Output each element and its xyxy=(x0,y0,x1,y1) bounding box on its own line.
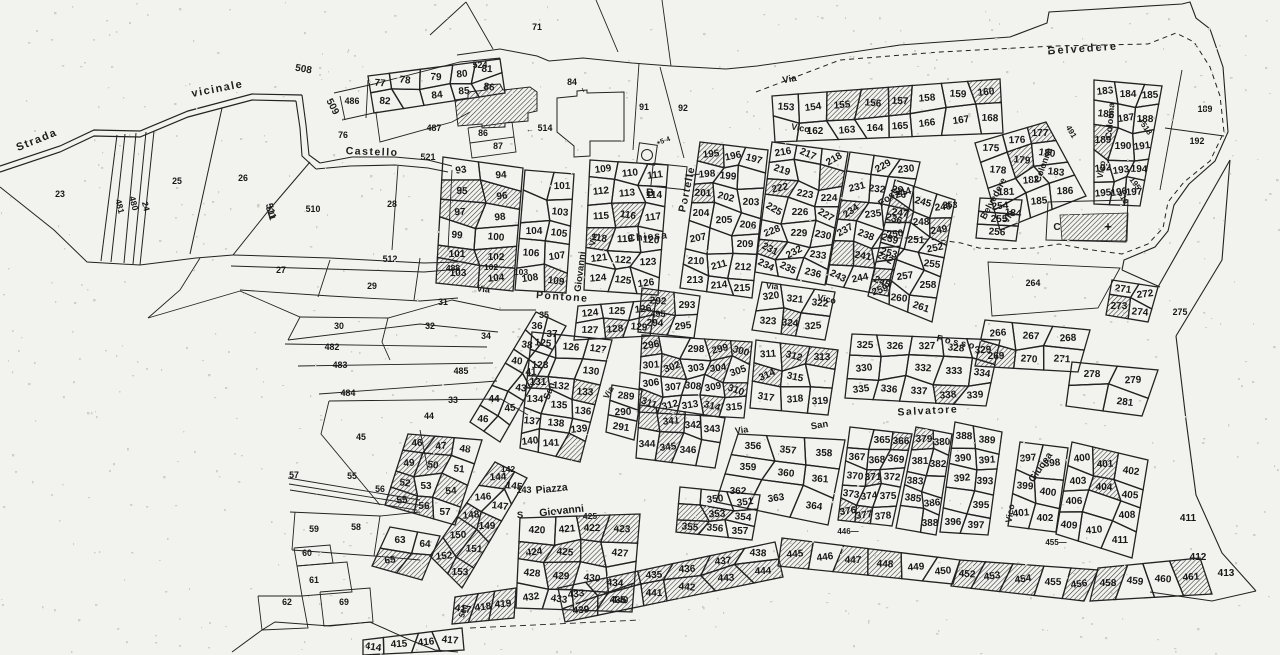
svg-text:446—: 446— xyxy=(837,527,858,536)
svg-text:486: 486 xyxy=(345,96,360,106)
svg-text:344: 344 xyxy=(639,439,656,450)
svg-text:168: 168 xyxy=(981,113,998,125)
svg-text:103: 103 xyxy=(514,267,529,277)
svg-text:41: 41 xyxy=(525,367,537,378)
svg-text:100: 100 xyxy=(487,231,505,243)
svg-text:514: 514 xyxy=(538,123,553,133)
svg-text:C: C xyxy=(1053,222,1060,233)
svg-text:371: 371 xyxy=(865,472,882,483)
svg-text:194: 194 xyxy=(1130,164,1147,176)
svg-text:56: 56 xyxy=(375,484,385,494)
svg-text:264: 264 xyxy=(1026,278,1041,288)
svg-text:185: 185 xyxy=(1141,90,1159,102)
svg-text:343: 343 xyxy=(703,424,720,436)
svg-text:86: 86 xyxy=(478,128,488,138)
svg-text:256: 256 xyxy=(988,226,1006,238)
svg-text:385: 385 xyxy=(904,492,922,505)
svg-text:388: 388 xyxy=(922,518,939,529)
svg-text:31: 31 xyxy=(438,297,448,307)
svg-text:55: 55 xyxy=(396,494,408,506)
svg-text:62: 62 xyxy=(282,597,292,607)
svg-text:357: 357 xyxy=(779,444,797,457)
svg-text:110: 110 xyxy=(621,167,639,180)
svg-text:84: 84 xyxy=(567,77,577,87)
svg-text:230: 230 xyxy=(897,163,915,176)
svg-text:402: 402 xyxy=(1037,513,1054,524)
svg-text:324: 324 xyxy=(781,317,799,329)
svg-text:45: 45 xyxy=(356,432,366,442)
svg-text:46: 46 xyxy=(411,438,423,450)
svg-text:375: 375 xyxy=(880,491,897,502)
svg-text:397: 397 xyxy=(1019,452,1037,464)
svg-text:425: 425 xyxy=(556,546,574,558)
svg-text:58: 58 xyxy=(351,522,361,532)
svg-text:455: 455 xyxy=(1045,577,1062,588)
svg-text:151: 151 xyxy=(465,543,483,555)
svg-text:370: 370 xyxy=(846,470,864,483)
svg-text:224: 224 xyxy=(821,193,838,204)
svg-text:232: 232 xyxy=(868,183,886,196)
svg-text:214: 214 xyxy=(710,279,728,291)
svg-text:253: 253 xyxy=(943,200,958,210)
svg-text:28: 28 xyxy=(387,199,397,209)
svg-text:391: 391 xyxy=(978,454,996,466)
svg-text:368: 368 xyxy=(868,455,886,467)
svg-text:290: 290 xyxy=(614,407,631,419)
svg-text:279: 279 xyxy=(1124,375,1142,387)
svg-text:418: 418 xyxy=(474,601,492,614)
svg-text:408: 408 xyxy=(1118,510,1135,522)
svg-text:267: 267 xyxy=(1022,331,1040,343)
svg-text:44: 44 xyxy=(488,394,500,405)
svg-text:353: 353 xyxy=(708,509,726,521)
svg-text:137: 137 xyxy=(523,415,541,428)
svg-text:94: 94 xyxy=(495,170,507,182)
svg-text:335: 335 xyxy=(852,383,870,396)
svg-text:40: 40 xyxy=(511,355,524,367)
svg-text:409: 409 xyxy=(1060,519,1078,532)
svg-text:92: 92 xyxy=(678,103,688,113)
svg-text:149: 149 xyxy=(479,521,496,532)
svg-text:91: 91 xyxy=(639,102,649,112)
svg-text:185: 185 xyxy=(1030,195,1048,207)
svg-text:327: 327 xyxy=(918,341,935,353)
svg-text:427: 427 xyxy=(611,547,629,559)
svg-text:175: 175 xyxy=(982,143,999,155)
svg-text:153: 153 xyxy=(451,567,468,579)
svg-text:438: 438 xyxy=(749,547,767,559)
svg-text:390: 390 xyxy=(954,452,972,465)
svg-text:48: 48 xyxy=(459,443,472,456)
svg-text:392: 392 xyxy=(953,472,971,484)
svg-text:388: 388 xyxy=(955,431,972,443)
svg-text:416: 416 xyxy=(417,636,435,648)
svg-text:258: 258 xyxy=(920,280,937,291)
svg-text:318: 318 xyxy=(786,393,804,405)
svg-text:45: 45 xyxy=(504,402,516,414)
svg-text:186: 186 xyxy=(1056,186,1073,198)
svg-text:141: 141 xyxy=(542,438,560,450)
svg-text:203: 203 xyxy=(742,197,759,209)
svg-text:95: 95 xyxy=(456,186,468,197)
svg-text:311: 311 xyxy=(760,348,777,360)
svg-text:350: 350 xyxy=(706,493,724,506)
svg-text:69: 69 xyxy=(339,597,349,607)
svg-text:330: 330 xyxy=(855,362,873,375)
svg-text:65: 65 xyxy=(384,554,397,566)
svg-text:354: 354 xyxy=(734,511,752,524)
svg-text:209: 209 xyxy=(737,239,754,250)
svg-text:251: 251 xyxy=(907,235,924,247)
svg-text:482: 482 xyxy=(325,342,340,352)
svg-text:199: 199 xyxy=(719,170,737,182)
svg-text:337: 337 xyxy=(910,386,928,398)
svg-text:139: 139 xyxy=(570,423,588,436)
svg-text:50: 50 xyxy=(427,459,440,471)
svg-text:484: 484 xyxy=(341,388,356,398)
svg-text:361: 361 xyxy=(811,473,829,485)
svg-text:124: 124 xyxy=(581,307,599,320)
svg-text:250: 250 xyxy=(886,228,904,241)
svg-text:98: 98 xyxy=(494,211,506,223)
svg-text:229: 229 xyxy=(790,228,807,240)
svg-text:71: 71 xyxy=(532,22,542,32)
svg-text:198: 198 xyxy=(698,168,716,180)
svg-text:176: 176 xyxy=(1008,135,1025,147)
svg-text:25: 25 xyxy=(172,176,182,186)
svg-text:46: 46 xyxy=(477,414,489,426)
svg-text:512: 512 xyxy=(383,254,398,264)
svg-text:434: 434 xyxy=(606,578,624,590)
svg-text:400: 400 xyxy=(1073,452,1091,465)
svg-text:30: 30 xyxy=(334,321,344,331)
svg-text:289: 289 xyxy=(617,390,635,403)
svg-text:485: 485 xyxy=(454,366,469,376)
svg-text:114: 114 xyxy=(646,190,663,201)
svg-text:365: 365 xyxy=(874,435,891,446)
svg-text:235: 235 xyxy=(864,208,882,221)
svg-text:136: 136 xyxy=(574,405,592,417)
svg-text:156: 156 xyxy=(864,97,882,109)
svg-text:44: 44 xyxy=(424,411,434,421)
svg-text:338: 338 xyxy=(939,389,957,401)
svg-text:356: 356 xyxy=(706,522,724,534)
svg-text:164: 164 xyxy=(867,123,884,134)
svg-text:192: 192 xyxy=(1190,136,1205,146)
svg-text:273: 273 xyxy=(1111,301,1128,312)
svg-text:26: 26 xyxy=(238,173,248,183)
svg-text:60: 60 xyxy=(302,548,312,558)
svg-text:510: 510 xyxy=(306,204,321,214)
svg-text:255: 255 xyxy=(923,258,941,271)
svg-text:27: 27 xyxy=(276,265,286,275)
svg-text:450: 450 xyxy=(934,565,952,577)
svg-text:127: 127 xyxy=(581,325,598,337)
svg-text:272: 272 xyxy=(1136,288,1154,301)
svg-text:147: 147 xyxy=(491,500,509,513)
svg-text:160: 160 xyxy=(977,86,995,99)
svg-text:51: 51 xyxy=(453,464,465,476)
svg-text:403: 403 xyxy=(1069,476,1086,488)
svg-text:104: 104 xyxy=(526,226,543,237)
svg-text:49: 49 xyxy=(403,458,415,470)
svg-text:382: 382 xyxy=(930,459,947,470)
svg-text:410: 410 xyxy=(1085,524,1103,536)
svg-text:177: 177 xyxy=(1032,128,1049,139)
svg-text:294: 294 xyxy=(646,318,663,330)
svg-text:128: 128 xyxy=(606,323,624,335)
svg-text:483: 483 xyxy=(333,360,348,370)
svg-text:205: 205 xyxy=(715,215,732,227)
svg-text:456: 456 xyxy=(1070,578,1088,591)
svg-text:444: 444 xyxy=(754,566,772,578)
svg-text:406: 406 xyxy=(1066,496,1083,507)
svg-text:342: 342 xyxy=(684,420,701,432)
svg-text:401: 401 xyxy=(1096,459,1114,471)
svg-text:116: 116 xyxy=(619,209,637,222)
svg-text:292: 292 xyxy=(649,296,667,308)
svg-text:436: 436 xyxy=(678,564,695,576)
svg-text:52: 52 xyxy=(399,477,412,489)
svg-text:138: 138 xyxy=(547,417,565,429)
svg-text:37: 37 xyxy=(546,329,558,340)
svg-text:99: 99 xyxy=(451,230,463,242)
svg-text:135: 135 xyxy=(550,400,568,412)
svg-text:80: 80 xyxy=(456,68,468,80)
svg-text:154: 154 xyxy=(804,101,822,114)
svg-text:423: 423 xyxy=(613,524,631,536)
svg-text:111: 111 xyxy=(647,169,664,182)
svg-text:488: 488 xyxy=(446,263,461,273)
svg-text:386: 386 xyxy=(923,497,941,509)
svg-text:117: 117 xyxy=(644,211,662,224)
svg-text:271: 271 xyxy=(1114,283,1132,296)
svg-text:275: 275 xyxy=(1173,307,1188,317)
svg-text:106: 106 xyxy=(522,247,540,259)
svg-text:266: 266 xyxy=(989,327,1007,339)
svg-text:97: 97 xyxy=(454,207,466,219)
svg-text:357: 357 xyxy=(732,526,749,537)
svg-text:36: 36 xyxy=(531,321,543,332)
svg-text:178: 178 xyxy=(989,164,1007,176)
svg-text:34: 34 xyxy=(481,331,491,341)
svg-text:274: 274 xyxy=(1131,306,1149,318)
svg-text:103: 103 xyxy=(551,206,569,219)
svg-text:460: 460 xyxy=(1154,573,1172,585)
svg-text:332: 332 xyxy=(914,363,932,375)
svg-text:389: 389 xyxy=(978,434,996,446)
svg-text:435: 435 xyxy=(645,570,663,582)
svg-text:341: 341 xyxy=(662,415,680,427)
svg-text:143: 143 xyxy=(516,485,531,495)
svg-text:293: 293 xyxy=(679,300,696,311)
svg-text:377: 377 xyxy=(855,509,873,522)
svg-text:487: 487 xyxy=(427,123,442,133)
svg-text:346: 346 xyxy=(680,445,697,456)
svg-text:495: 495 xyxy=(651,309,666,319)
svg-text:157: 157 xyxy=(891,96,908,108)
svg-text:109: 109 xyxy=(594,163,612,176)
svg-text:162: 162 xyxy=(807,126,824,137)
svg-text:301: 301 xyxy=(642,359,660,371)
svg-text:123: 123 xyxy=(639,257,656,269)
svg-text:325: 325 xyxy=(804,320,822,332)
svg-text:362: 362 xyxy=(730,486,747,497)
svg-text:96: 96 xyxy=(496,190,509,202)
svg-text:445: 445 xyxy=(786,548,804,560)
svg-text:355: 355 xyxy=(681,521,699,533)
svg-text:215: 215 xyxy=(733,283,750,295)
svg-text:153: 153 xyxy=(777,101,795,113)
svg-text:323: 323 xyxy=(759,316,777,328)
svg-text:61: 61 xyxy=(309,575,319,585)
svg-text:360: 360 xyxy=(777,467,795,480)
svg-text:204: 204 xyxy=(693,208,710,219)
svg-text:396: 396 xyxy=(945,517,962,528)
svg-text:Via: Via xyxy=(766,280,780,291)
svg-text:374: 374 xyxy=(860,490,878,503)
svg-text:55: 55 xyxy=(347,471,357,481)
svg-text:356: 356 xyxy=(744,441,761,453)
svg-text:59: 59 xyxy=(309,524,319,534)
svg-text:422: 422 xyxy=(584,523,601,534)
svg-text:190: 190 xyxy=(1115,141,1132,152)
svg-text:372: 372 xyxy=(883,471,901,483)
svg-text:455—: 455— xyxy=(1045,538,1066,547)
svg-text:345: 345 xyxy=(659,441,677,454)
svg-text:113: 113 xyxy=(619,187,636,199)
svg-text:Castello: Castello xyxy=(345,145,398,159)
svg-text:359: 359 xyxy=(739,462,756,474)
svg-text:358: 358 xyxy=(815,448,832,460)
svg-text:165: 165 xyxy=(891,121,909,133)
svg-text:308: 308 xyxy=(684,380,702,392)
svg-text:295: 295 xyxy=(674,320,692,333)
svg-text:447: 447 xyxy=(845,555,862,566)
svg-text:+: + xyxy=(1104,219,1112,234)
svg-text:124: 124 xyxy=(589,272,607,284)
svg-text:206: 206 xyxy=(739,219,757,232)
svg-text:453: 453 xyxy=(983,570,1001,583)
svg-text:424: 424 xyxy=(525,546,543,559)
svg-text:268: 268 xyxy=(1059,333,1077,345)
svg-text:125: 125 xyxy=(614,274,632,287)
svg-text:79: 79 xyxy=(430,72,442,83)
svg-text:415: 415 xyxy=(390,639,408,651)
svg-text:448: 448 xyxy=(876,559,894,571)
svg-text:419: 419 xyxy=(494,598,512,610)
svg-text:379: 379 xyxy=(916,434,933,445)
svg-text:195: 195 xyxy=(702,148,720,160)
svg-text:53: 53 xyxy=(420,481,432,492)
svg-text:163: 163 xyxy=(838,124,856,136)
svg-text:325: 325 xyxy=(857,340,874,351)
svg-text:64: 64 xyxy=(419,539,431,550)
svg-text:393: 393 xyxy=(976,476,993,488)
svg-text:378: 378 xyxy=(874,510,892,522)
svg-text:313: 313 xyxy=(814,352,831,363)
svg-text:449: 449 xyxy=(907,561,925,573)
svg-text:101: 101 xyxy=(449,249,466,260)
svg-text:260: 260 xyxy=(890,292,908,305)
svg-text:184: 184 xyxy=(1120,89,1137,100)
svg-text:441: 441 xyxy=(646,588,663,599)
svg-text:130: 130 xyxy=(582,365,600,378)
svg-text:158: 158 xyxy=(918,92,936,104)
svg-text:38: 38 xyxy=(521,339,534,351)
svg-text:329: 329 xyxy=(974,345,991,357)
svg-text:395: 395 xyxy=(973,500,990,511)
svg-text:461: 461 xyxy=(1182,571,1200,583)
svg-text:Via: Via xyxy=(476,283,491,294)
svg-text:421: 421 xyxy=(558,523,576,535)
svg-text:333: 333 xyxy=(946,366,963,377)
svg-text:23: 23 xyxy=(55,189,65,199)
svg-text:32: 32 xyxy=(425,321,435,331)
svg-text:43: 43 xyxy=(515,382,528,394)
svg-text:443: 443 xyxy=(717,573,734,585)
svg-text:57: 57 xyxy=(289,470,299,480)
svg-text:437: 437 xyxy=(714,555,732,567)
svg-text:381: 381 xyxy=(912,456,929,467)
svg-text:364: 364 xyxy=(805,500,823,513)
svg-text:367: 367 xyxy=(848,452,865,464)
svg-text:63: 63 xyxy=(394,535,406,546)
svg-text:126: 126 xyxy=(562,341,580,353)
svg-text:459: 459 xyxy=(1126,575,1144,588)
svg-text:213: 213 xyxy=(687,275,704,286)
svg-text:105: 105 xyxy=(550,227,568,240)
svg-text:179: 179 xyxy=(1013,154,1031,167)
svg-text:56: 56 xyxy=(418,501,430,512)
svg-text:81: 81 xyxy=(481,64,493,75)
svg-text:150: 150 xyxy=(449,530,467,542)
svg-text:226: 226 xyxy=(792,207,809,218)
svg-text:146: 146 xyxy=(474,491,492,503)
svg-text:183: 183 xyxy=(1096,85,1114,98)
svg-text:133: 133 xyxy=(576,387,594,399)
svg-text:413: 413 xyxy=(1218,568,1235,579)
svg-text:155: 155 xyxy=(833,99,851,111)
svg-text:278: 278 xyxy=(1084,369,1101,380)
svg-text:148: 148 xyxy=(462,509,480,522)
svg-text:404: 404 xyxy=(1095,482,1112,494)
svg-text:←: ← xyxy=(526,125,534,134)
svg-text:281: 281 xyxy=(1116,396,1134,409)
svg-text:57: 57 xyxy=(439,507,451,518)
svg-text:76: 76 xyxy=(338,130,348,140)
svg-text:102: 102 xyxy=(484,262,499,272)
svg-text:142: 142 xyxy=(501,464,516,474)
svg-text:212: 212 xyxy=(734,262,752,274)
svg-text:439: 439 xyxy=(572,604,590,616)
svg-text:84: 84 xyxy=(431,89,444,101)
svg-text:411: 411 xyxy=(1180,513,1197,524)
svg-text:339: 339 xyxy=(966,389,984,401)
svg-text:369: 369 xyxy=(887,453,905,466)
svg-text:104: 104 xyxy=(487,272,505,284)
svg-text:383: 383 xyxy=(906,475,924,487)
svg-text:433: 433 xyxy=(567,588,585,601)
svg-text:191: 191 xyxy=(1133,140,1151,153)
svg-text:397: 397 xyxy=(967,520,984,532)
svg-text:326: 326 xyxy=(886,341,903,353)
svg-text:432: 432 xyxy=(522,591,540,604)
svg-text:366: 366 xyxy=(893,436,910,447)
svg-text:428: 428 xyxy=(523,567,541,580)
svg-text:420: 420 xyxy=(528,525,545,537)
svg-text:33: 33 xyxy=(448,395,458,405)
